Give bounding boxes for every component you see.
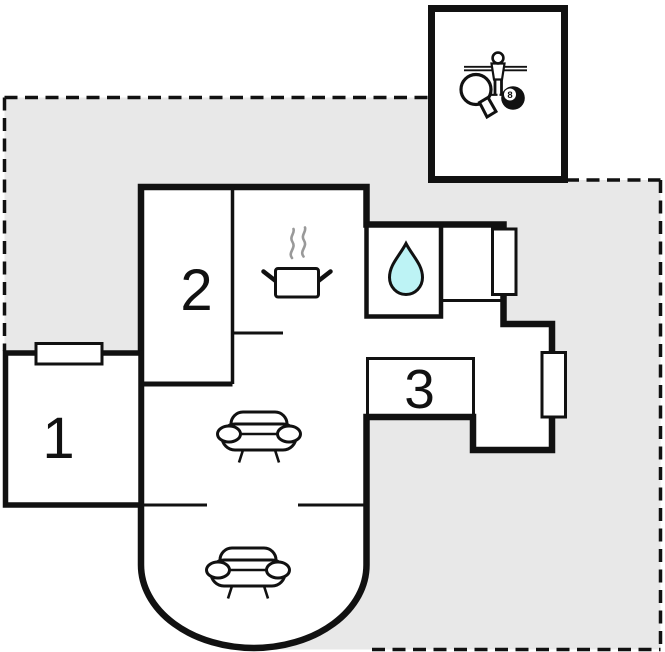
eight-ball-icon: 8 xyxy=(501,86,525,110)
window-icon xyxy=(542,353,566,418)
game-room-outline xyxy=(432,9,565,180)
room-3-label: 3 xyxy=(404,358,435,420)
window-icon xyxy=(493,229,517,295)
plan-root: 8 1 2 3 xyxy=(5,9,661,652)
foosball-head xyxy=(493,53,504,64)
floor-plan-svg: 8 1 2 3 xyxy=(0,0,665,652)
eight-ball-number: 8 xyxy=(507,90,512,101)
room-1-label: 1 xyxy=(42,406,74,471)
floor-plan: 8 1 2 3 xyxy=(0,0,665,652)
window-icon xyxy=(36,344,102,365)
room-2-label: 2 xyxy=(180,258,212,323)
foosball-torso xyxy=(492,64,505,80)
pot-body xyxy=(276,269,319,298)
